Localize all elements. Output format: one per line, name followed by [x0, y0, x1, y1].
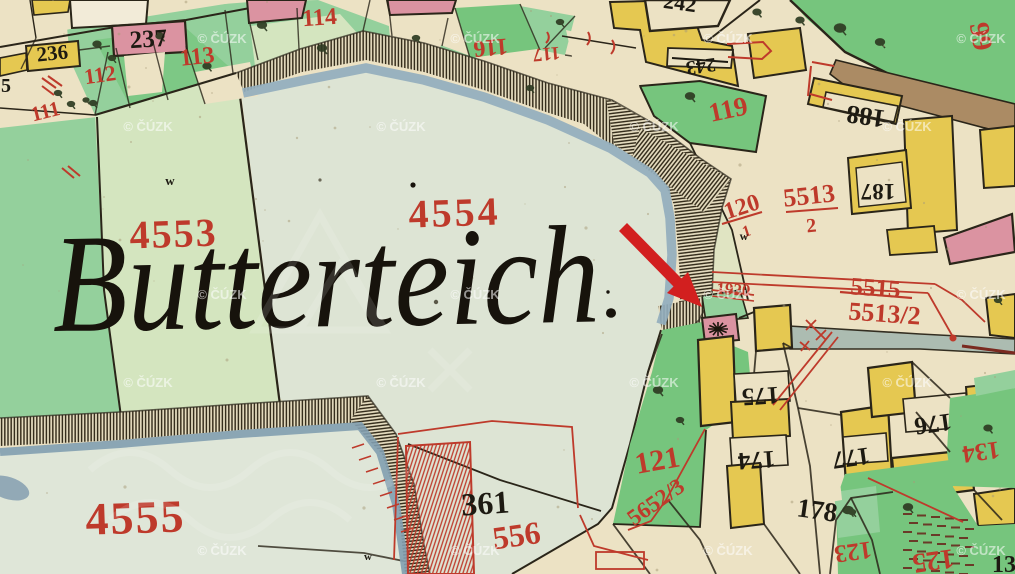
- svg-text:© ČÚZK: © ČÚZK: [703, 287, 753, 302]
- svg-text:© ČÚZK: © ČÚZK: [882, 119, 932, 134]
- svg-text:114: 114: [301, 4, 337, 32]
- svg-text:© ČÚZK: © ČÚZK: [629, 375, 679, 390]
- svg-text:© ČÚZK: © ČÚZK: [450, 31, 500, 46]
- svg-text:5513/2: 5513/2: [848, 297, 922, 331]
- svg-text:176: 176: [913, 407, 954, 439]
- svg-text:© ČÚZK: © ČÚZK: [376, 119, 426, 134]
- svg-text:123: 123: [833, 535, 874, 567]
- svg-text:177: 177: [831, 441, 872, 473]
- svg-text:5: 5: [1, 75, 11, 97]
- svg-text:© ČÚZK: © ČÚZK: [956, 543, 1006, 558]
- svg-text:188: 188: [844, 99, 887, 133]
- svg-text:© ČÚZK: © ČÚZK: [197, 287, 247, 302]
- svg-text:© ČÚZK: © ČÚZK: [956, 287, 1006, 302]
- svg-text:236: 236: [35, 39, 69, 66]
- svg-text:5513: 5513: [782, 178, 837, 212]
- svg-text:178: 178: [795, 492, 839, 527]
- svg-text:© ČÚZK: © ČÚZK: [376, 375, 426, 390]
- svg-text:w: w: [740, 229, 749, 243]
- svg-text:237: 237: [129, 25, 168, 55]
- svg-text:© ČÚZK: © ČÚZK: [450, 287, 500, 302]
- svg-text:w: w: [364, 551, 372, 563]
- svg-text:187: 187: [861, 179, 896, 204]
- svg-text:w: w: [165, 173, 175, 188]
- svg-text:134: 134: [960, 435, 1001, 467]
- svg-text:© ČÚZK: © ČÚZK: [450, 543, 500, 558]
- svg-text:113: 113: [179, 42, 216, 71]
- svg-text:© ČÚZK: © ČÚZK: [197, 31, 247, 46]
- svg-text:© ČÚZK: © ČÚZK: [197, 543, 247, 558]
- svg-text:© ČÚZK: © ČÚZK: [703, 31, 753, 46]
- svg-text:361: 361: [460, 483, 510, 522]
- svg-text:243: 243: [684, 53, 717, 79]
- svg-text:4555: 4555: [85, 490, 187, 544]
- svg-text:© ČÚZK: © ČÚZK: [629, 119, 679, 134]
- svg-text:© ČÚZK: © ČÚZK: [882, 375, 932, 390]
- svg-text:© ČÚZK: © ČÚZK: [956, 31, 1006, 46]
- svg-text:175: 175: [741, 381, 780, 411]
- svg-text:117: 117: [531, 42, 561, 65]
- svg-text:© ČÚZK: © ČÚZK: [703, 543, 753, 558]
- svg-text:174: 174: [736, 445, 776, 475]
- svg-text:© ČÚZK: © ČÚZK: [123, 375, 173, 390]
- svg-text:© ČÚZK: © ČÚZK: [123, 119, 173, 134]
- svg-text:112: 112: [82, 60, 117, 89]
